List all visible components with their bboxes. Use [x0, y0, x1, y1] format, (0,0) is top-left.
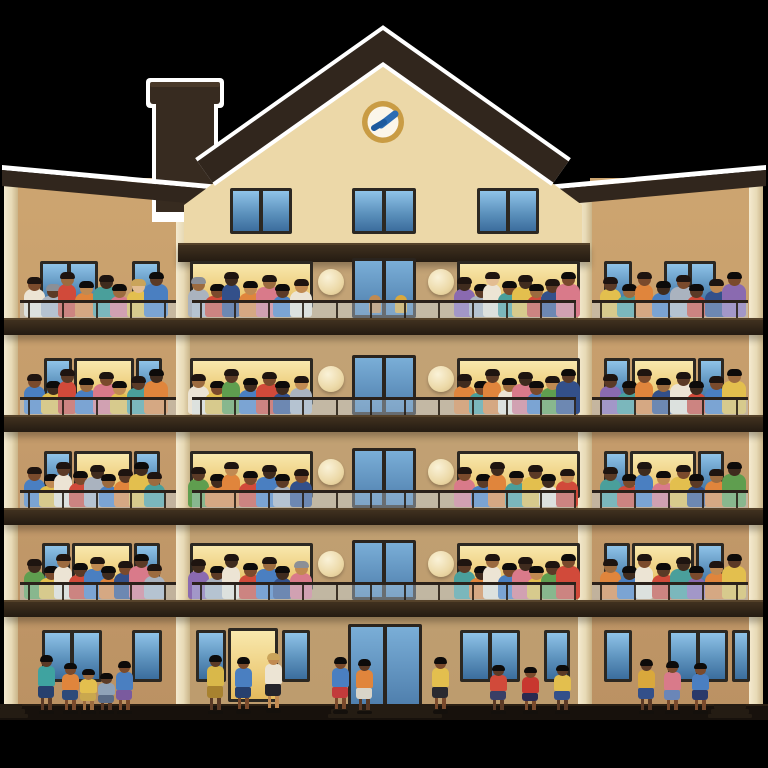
person-legs [101, 703, 112, 710]
street-person [690, 664, 710, 714]
street-person [430, 658, 450, 714]
person-leg [101, 703, 105, 710]
street-person [662, 662, 682, 714]
person-shoes [333, 710, 348, 714]
person-shoes [208, 711, 223, 714]
person-leg [217, 698, 221, 710]
street-person [488, 666, 508, 714]
person-torso [664, 672, 681, 690]
person-torso [62, 674, 79, 691]
person-legs [493, 700, 504, 710]
person-leg [119, 700, 123, 710]
person-torso [356, 670, 373, 688]
person-leg [245, 698, 249, 709]
person-head [359, 660, 370, 671]
person-shoes [639, 711, 654, 714]
person-leg [532, 701, 536, 710]
person-leg [108, 703, 112, 710]
person-torso [235, 668, 252, 687]
person-legs [359, 699, 370, 710]
person-bottoms [98, 695, 114, 702]
person-shoes [81, 711, 96, 714]
person-bottoms [80, 693, 96, 701]
person-leg [210, 698, 214, 710]
person-leg [564, 700, 568, 710]
street-person [263, 654, 283, 714]
side-steps-right [714, 704, 746, 720]
person-hair [40, 655, 53, 662]
person-legs [41, 698, 52, 710]
person-leg [238, 698, 242, 709]
person-bottoms [332, 687, 348, 698]
person-head [268, 654, 279, 665]
person-head [435, 658, 446, 669]
person-torso [80, 679, 97, 693]
person-legs [210, 698, 221, 710]
person-shoes [357, 711, 372, 714]
person-head [641, 660, 652, 671]
street-person [60, 664, 80, 714]
person-legs [641, 699, 652, 710]
person-bottoms [116, 690, 132, 700]
street-person [96, 674, 116, 714]
person-hair [434, 657, 447, 664]
step [328, 714, 442, 718]
person-leg [500, 700, 504, 710]
street-front-layer [0, 0, 768, 768]
person-head [41, 656, 52, 667]
street-person [233, 658, 253, 714]
person-bottoms [692, 690, 708, 700]
person-bottoms [638, 688, 654, 699]
person-leg [674, 700, 678, 710]
person-hair [694, 663, 707, 669]
side-steps-left [0, 704, 22, 720]
person-torso [432, 668, 449, 687]
person-hair [100, 673, 113, 679]
street-person [78, 670, 98, 714]
person-shoes [99, 711, 114, 714]
person-shoes [266, 709, 281, 713]
person-legs [268, 696, 279, 708]
person-leg [275, 696, 279, 708]
person-torso [265, 664, 282, 684]
person-legs [119, 700, 130, 710]
person-hair [556, 665, 569, 671]
person-shoes [523, 711, 538, 714]
person-legs [335, 698, 346, 709]
person-bottoms [664, 690, 680, 700]
person-shoes [63, 711, 78, 714]
person-shoes [665, 711, 680, 714]
person-leg [90, 701, 94, 709]
person-torso [38, 666, 55, 686]
person-leg [268, 696, 272, 708]
person-bottoms [62, 690, 78, 700]
step [0, 714, 28, 718]
person-leg [335, 698, 339, 709]
person-leg [435, 698, 439, 709]
street-person [520, 668, 540, 714]
person-leg [557, 700, 561, 710]
person-legs [238, 698, 249, 709]
person-leg [72, 700, 76, 710]
person-torso [490, 675, 507, 690]
person-leg [366, 699, 370, 710]
person-hair [237, 657, 250, 664]
person-legs [65, 700, 76, 710]
person-head [557, 666, 568, 676]
street-person [36, 656, 56, 714]
person-leg [667, 700, 671, 710]
person-torso [554, 675, 571, 690]
person-bottoms [265, 684, 281, 696]
person-leg [648, 699, 652, 710]
person-torso [522, 677, 539, 692]
street-person [330, 658, 350, 714]
person-legs [83, 701, 94, 709]
person-head [695, 664, 706, 675]
person-head [525, 668, 536, 678]
person-head [493, 666, 504, 676]
person-shoes [117, 711, 132, 714]
person-leg [525, 701, 529, 710]
person-hair [640, 659, 653, 666]
person-hair [209, 655, 222, 662]
person-torso [638, 670, 655, 688]
apartment-building-illustration [0, 0, 768, 768]
person-head [238, 658, 249, 669]
person-torso [116, 672, 133, 690]
person-legs [525, 701, 536, 710]
person-bottoms [207, 686, 223, 698]
person-leg [83, 701, 87, 709]
person-leg [65, 700, 69, 710]
person-leg [695, 700, 699, 710]
person-hair [492, 665, 505, 671]
street-person [354, 660, 374, 714]
step [708, 714, 752, 718]
person-leg [641, 699, 645, 710]
person-hair [64, 663, 77, 669]
person-leg [442, 698, 446, 709]
person-shoes [236, 710, 251, 714]
person-leg [493, 700, 497, 710]
person-head [119, 662, 130, 673]
person-hair [666, 661, 679, 668]
person-bottoms [490, 691, 506, 701]
person-shoes [491, 711, 506, 714]
person-legs [557, 700, 568, 710]
person-hair [267, 653, 280, 660]
person-bottoms [38, 686, 54, 698]
street-person [114, 662, 134, 714]
person-head [210, 656, 221, 667]
person-shoes [693, 711, 708, 714]
person-bottoms [522, 693, 538, 702]
person-head [335, 658, 346, 669]
person-shoes [39, 711, 54, 714]
person-bottoms [356, 688, 372, 699]
person-bottoms [554, 691, 570, 701]
person-head [83, 670, 94, 680]
person-leg [126, 700, 130, 710]
person-legs [667, 700, 678, 710]
person-torso [692, 674, 709, 691]
person-hair [358, 659, 371, 666]
person-shoes [555, 711, 570, 714]
street-person [552, 666, 572, 714]
person-bottoms [235, 687, 251, 698]
street-person [636, 660, 656, 714]
person-leg [48, 698, 52, 710]
person-shoes [433, 710, 448, 714]
person-leg [41, 698, 45, 710]
person-torso [207, 666, 224, 686]
street-person [205, 656, 225, 714]
person-torso [332, 668, 349, 687]
person-hair [524, 667, 537, 673]
street [0, 720, 768, 768]
person-hair [334, 657, 347, 664]
person-head [101, 674, 112, 684]
person-torso [98, 683, 115, 696]
person-head [65, 664, 76, 675]
person-head [667, 662, 678, 673]
person-bottoms [432, 687, 448, 698]
person-hair [82, 669, 95, 675]
person-legs [435, 698, 446, 709]
person-leg [359, 699, 363, 710]
person-leg [342, 698, 346, 709]
person-hair [118, 661, 131, 668]
person-leg [702, 700, 706, 710]
person-legs [695, 700, 706, 710]
